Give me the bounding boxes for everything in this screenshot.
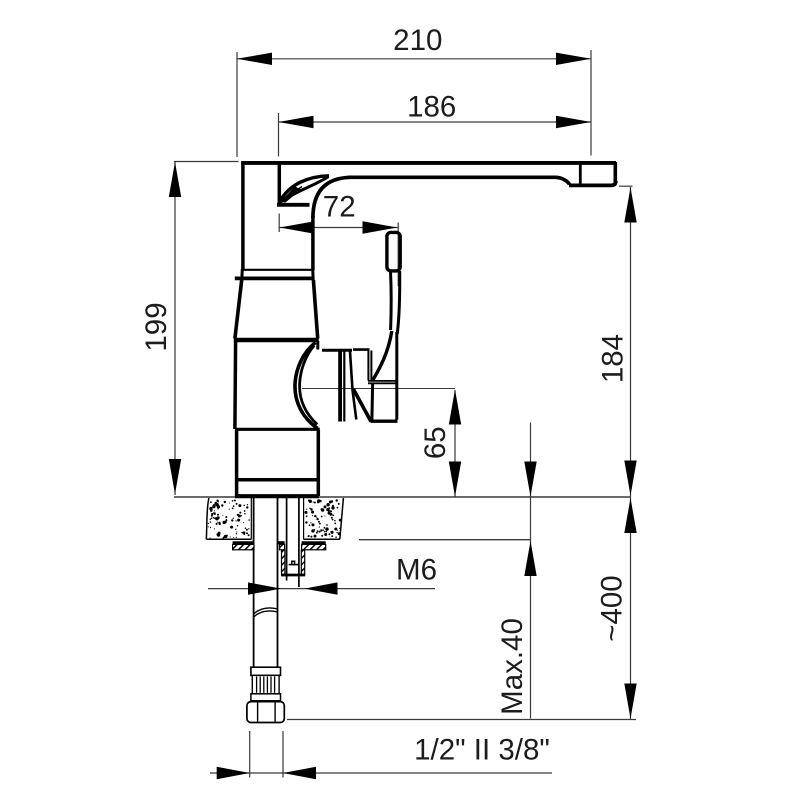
svg-text:M6: M6 (396, 553, 437, 586)
svg-text:199: 199 (140, 302, 173, 351)
svg-text:184: 184 (596, 334, 629, 383)
svg-text:72: 72 (323, 191, 356, 224)
svg-text:Max.40: Max.40 (496, 618, 529, 715)
svg-text:186: 186 (407, 91, 456, 124)
svg-text:65: 65 (419, 426, 452, 459)
svg-text:~400: ~400 (596, 575, 629, 641)
svg-text:1/2" II 3/8": 1/2" II 3/8" (414, 734, 550, 767)
svg-text:210: 210 (393, 24, 442, 57)
